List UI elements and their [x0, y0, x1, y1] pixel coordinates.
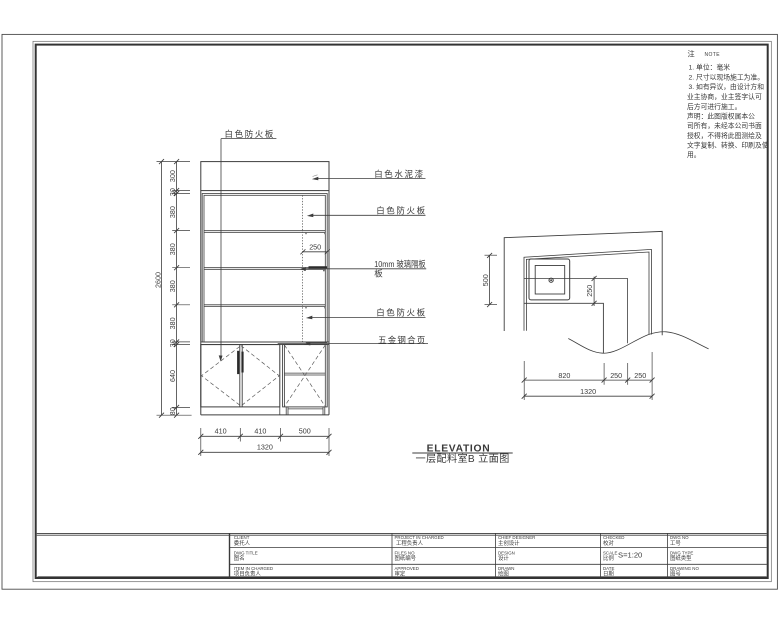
svg-text:图纸编号: 图纸编号 [395, 554, 417, 562]
svg-text:DWG TITLE: DWG TITLE [234, 550, 258, 555]
svg-text:ITEM IN CHARGED: ITEM IN CHARGED [234, 566, 273, 571]
svg-text:1320: 1320 [580, 387, 596, 396]
svg-text:2. 尺寸以现场施工为准。: 2. 尺寸以现场施工为准。 [689, 72, 765, 81]
svg-text:委托人: 委托人 [234, 539, 251, 547]
svg-text:绘图: 绘图 [498, 570, 509, 578]
svg-text:项目负责人: 项目负责人 [234, 570, 262, 578]
svg-text:410: 410 [254, 426, 266, 435]
svg-text:380: 380 [168, 206, 177, 218]
svg-text:工程负责人: 工程负责人 [396, 539, 424, 547]
svg-text:白色防火板: 白色防火板 [376, 308, 427, 318]
svg-text:380: 380 [168, 280, 177, 292]
svg-text:FILES NO: FILES NO [395, 550, 416, 555]
svg-text:白色防火板: 白色防火板 [376, 206, 427, 216]
svg-text:300: 300 [168, 170, 177, 182]
svg-text:DRAWING NO: DRAWING NO [670, 566, 699, 571]
svg-text:1. 单位：毫米: 1. 单位：毫米 [689, 63, 731, 72]
svg-text:2600: 2600 [153, 272, 162, 288]
svg-text:图纸类型: 图纸类型 [670, 554, 692, 562]
svg-text:设计: 设计 [498, 554, 509, 562]
svg-text:410: 410 [215, 426, 227, 435]
svg-text:3. 如有异议，由设计方和: 3. 如有异议，由设计方和 [689, 82, 765, 91]
svg-text:用。: 用。 [687, 151, 701, 159]
svg-text:审定: 审定 [395, 570, 406, 578]
svg-text:文字复制、转换、印刷及使: 文字复制、转换、印刷及使 [687, 141, 769, 150]
svg-text:业主协商，业主签字认可: 业主协商，业主签字认可 [687, 92, 762, 101]
svg-text:SCALE: SCALE [603, 550, 617, 555]
svg-text:CHECKED: CHECKED [603, 535, 624, 540]
svg-text:比例: 比例 [603, 554, 614, 562]
svg-text:30: 30 [168, 339, 177, 347]
svg-text:640: 640 [168, 370, 177, 382]
svg-text:DWG NO: DWG NO [670, 535, 689, 540]
svg-text:500: 500 [299, 426, 311, 435]
svg-text:图号: 图号 [670, 570, 681, 578]
svg-text:图名: 图名 [234, 554, 245, 562]
svg-text:80: 80 [168, 407, 177, 415]
svg-text:NOTE: NOTE [705, 52, 721, 58]
svg-text:250: 250 [309, 242, 321, 251]
svg-text:DRAWN: DRAWN [498, 566, 514, 571]
svg-text:380: 380 [168, 243, 177, 255]
svg-text:250: 250 [585, 285, 594, 297]
svg-text:CLIENT: CLIENT [234, 535, 250, 540]
svg-text:白色防火板: 白色防火板 [225, 129, 276, 139]
svg-text:注: 注 [688, 50, 695, 59]
svg-text:1320: 1320 [257, 442, 273, 451]
svg-text:校对: 校对 [603, 539, 614, 547]
svg-text:DWG TYPE: DWG TYPE [670, 550, 693, 555]
svg-text:S=1:20: S=1:20 [618, 551, 642, 560]
svg-text:一层配料室B 立面图: 一层配料室B 立面图 [416, 452, 510, 465]
svg-text:250: 250 [610, 371, 622, 380]
svg-text:500: 500 [481, 274, 490, 286]
svg-text:APPROVED: APPROVED [395, 566, 419, 571]
svg-text:后方可进行施工。: 后方可进行施工。 [687, 102, 741, 111]
svg-text:工号: 工号 [670, 540, 681, 547]
svg-text:820: 820 [558, 371, 570, 380]
svg-text:司所有，未经本公司书面: 司所有，未经本公司书面 [687, 121, 762, 130]
svg-text:PROJECT IN CHARGED: PROJECT IN CHARGED [395, 535, 444, 540]
svg-text:声明：此图版权属本公: 声明：此图版权属本公 [687, 111, 755, 120]
svg-text:日期: 日期 [603, 571, 614, 578]
svg-text:DESIGN: DESIGN [498, 550, 515, 555]
svg-text:板: 板 [374, 269, 384, 279]
svg-text:授权，不得将此图测绘及: 授权，不得将此图测绘及 [687, 131, 762, 140]
svg-text:380: 380 [168, 317, 177, 329]
svg-text:250: 250 [634, 371, 646, 380]
svg-text:主创设计: 主创设计 [498, 539, 520, 547]
svg-text:CHIEF DESIGNER: CHIEF DESIGNER [498, 535, 535, 540]
svg-text:DATE: DATE [603, 566, 614, 571]
svg-text:30: 30 [168, 188, 177, 196]
svg-text:白色水泥漆: 白色水泥漆 [374, 169, 425, 179]
